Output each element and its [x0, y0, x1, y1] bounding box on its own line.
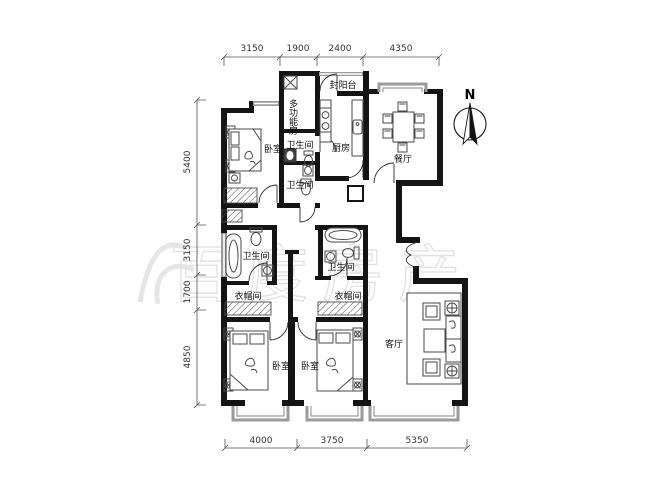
room-label-bath-mid-right: 卫生间 [327, 261, 354, 273]
dim-left-3: 1700 [183, 280, 193, 303]
dim-left-4: 4850 [183, 345, 193, 368]
dim-bottom-2: 3750 [321, 436, 344, 446]
room-label-bath-upper-2: 卫生间 [286, 179, 313, 191]
dim-bottom-1: 4000 [250, 436, 273, 446]
room-label-bedroom-bottom-mid: 卧室 [301, 360, 319, 372]
floor-plan-svg: 百度房产 [0, 0, 667, 500]
furniture-bedroom-bottom-left [230, 331, 268, 390]
dim-top-1: 3150 [241, 44, 264, 54]
dim-top-4: 4350 [390, 44, 413, 54]
bay-window-living [370, 406, 458, 420]
wardrobe-bedroom-top [224, 188, 257, 203]
wardrobe-cloak-right [318, 302, 362, 315]
floor-plan-image: 百度房产 [0, 0, 667, 500]
room-label-bath-mid-left: 卫生间 [242, 250, 269, 262]
wardrobe-cloak-left [225, 302, 271, 315]
room-label-balcony: 封阳台 [329, 79, 356, 91]
dimensions-bottom: 4000 3750 5350 [222, 436, 470, 451]
room-label-kitchen: 厨房 [332, 142, 350, 154]
room-label-bedroom-top: 卧室 [264, 143, 282, 155]
room-label-bedroom-bottom-left: 卧室 [272, 360, 290, 372]
dim-left-1: 5400 [183, 150, 193, 173]
dim-top-2: 1900 [287, 44, 310, 54]
duct-shaft [348, 186, 363, 201]
room-label-multi-function: 多功能房 [287, 98, 298, 136]
dim-left-2: 3150 [183, 238, 193, 261]
north-label: N [465, 88, 476, 103]
furniture-bedroom-top [229, 129, 261, 183]
hall-cabinet [222, 210, 242, 222]
room-label-dining: 餐厅 [394, 153, 412, 165]
room-label-bath-upper-1: 卫生间 [286, 139, 313, 151]
room-label-living: 客厅 [385, 338, 403, 350]
compass: N [454, 88, 486, 144]
room-label-cloak-right: 衣帽间 [334, 290, 361, 302]
dimensions-top: 3150 1900 2400 4350 [221, 44, 442, 66]
dim-top-3: 2400 [329, 44, 352, 54]
room-label-cloak-left: 衣帽间 [234, 290, 261, 302]
dim-bottom-3: 5350 [406, 436, 429, 446]
furniture-bedroom-bottom-mid [317, 330, 353, 391]
bay-window-bedroom-left [233, 406, 288, 420]
furniture-dining [383, 102, 424, 152]
furniture-multi-function [284, 76, 297, 89]
bay-window-bedroom-mid [307, 406, 362, 420]
